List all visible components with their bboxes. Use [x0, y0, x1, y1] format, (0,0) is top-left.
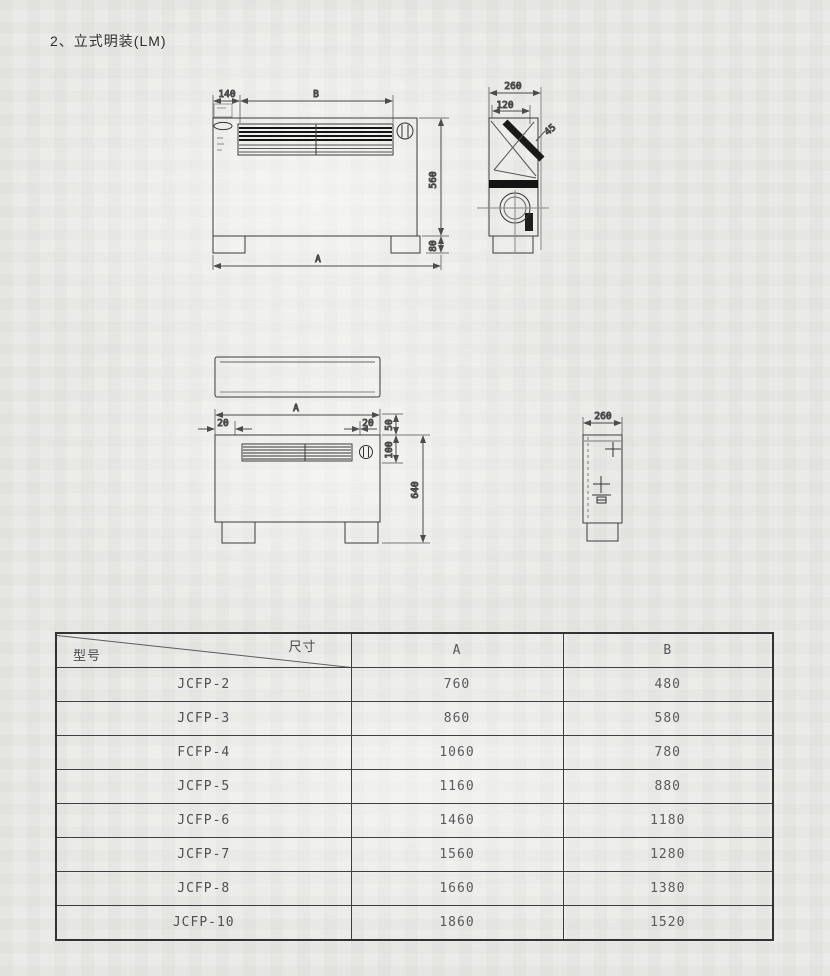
dim-label-640: 640 — [410, 481, 421, 498]
dim-a-cell: 1460 — [351, 804, 563, 838]
dim-a-cell: 760 — [351, 668, 563, 702]
model-cell: JCFP-3 — [56, 702, 351, 736]
corner-label-model: 型号 — [73, 645, 101, 664]
dim-b-cell: 580 — [563, 702, 773, 736]
model-cell: JCFP-5 — [56, 770, 351, 804]
dim-label-20-right: 20 — [362, 418, 374, 429]
dim-label-20-left: 20 — [217, 418, 229, 429]
table-header-row: 尺寸 型号 A B — [56, 633, 773, 668]
table-row: JCFP-8 1660 1380 — [56, 872, 773, 906]
top-view-drawing — [215, 357, 380, 397]
corner-cell: 尺寸 型号 — [56, 633, 351, 668]
dim-label-B: B — [313, 89, 319, 100]
dim-b-cell: 1180 — [563, 804, 773, 838]
column-header-a: A — [351, 633, 563, 668]
technical-drawings: 140 B — [0, 0, 830, 600]
dimension-table: 尺寸 型号 A B JCFP-2 760 480 JCFP-3 860 580 … — [55, 632, 774, 941]
model-cell: JCFP-8 — [56, 872, 351, 906]
dim-label-560: 560 — [428, 171, 439, 188]
dim-label-120: 120 — [496, 100, 513, 111]
dim-label-50: 50 — [384, 419, 395, 431]
model-cell: JCFP-6 — [56, 804, 351, 838]
front-view-mounted-drawing: A 20 20 50 — [198, 403, 430, 543]
dim-label-45: 45 — [542, 122, 558, 138]
side-view-mounted-drawing: 260 — [583, 411, 622, 541]
table-row: JCFP-5 1160 880 — [56, 770, 773, 804]
column-header-b: B — [563, 633, 773, 668]
dim-label-260-top: 260 — [504, 81, 521, 92]
louver-knob-mid — [360, 446, 373, 459]
table-row: JCFP-10 1860 1520 — [56, 906, 773, 941]
model-cell: JCFP-7 — [56, 838, 351, 872]
table-row: JCFP-2 760 480 — [56, 668, 773, 702]
dim-b-cell: 1280 — [563, 838, 773, 872]
front-view-drawing: 140 B — [213, 89, 449, 270]
dim-label-A-mid: A — [293, 403, 299, 414]
dim-b-cell: 1520 — [563, 906, 773, 941]
table-row: JCFP-7 1560 1280 — [56, 838, 773, 872]
dim-label-100: 100 — [384, 441, 395, 458]
dim-a-cell: 1860 — [351, 906, 563, 941]
corner-label-size: 尺寸 — [288, 636, 316, 655]
louver-knob — [397, 123, 413, 139]
dim-label-A: A — [315, 254, 321, 265]
dim-label-260-mid: 260 — [594, 411, 611, 422]
table-row: FCFP-4 1060 780 — [56, 736, 773, 770]
model-cell: FCFP-4 — [56, 736, 351, 770]
dim-a-cell: 1660 — [351, 872, 563, 906]
dim-a-cell: 1560 — [351, 838, 563, 872]
dim-b-cell: 780 — [563, 736, 773, 770]
model-cell: JCFP-2 — [56, 668, 351, 702]
table-row: JCFP-6 1460 1180 — [56, 804, 773, 838]
dim-a-cell: 860 — [351, 702, 563, 736]
dim-a-cell: 1060 — [351, 736, 563, 770]
side-view-drawing: 260 120 45 — [477, 81, 558, 253]
model-cell: JCFP-10 — [56, 906, 351, 941]
dim-label-80: 80 — [428, 240, 439, 252]
table-row: JCFP-3 860 580 — [56, 702, 773, 736]
dim-a-cell: 1160 — [351, 770, 563, 804]
dim-label-140: 140 — [218, 89, 235, 100]
dim-b-cell: 480 — [563, 668, 773, 702]
dim-b-cell: 1380 — [563, 872, 773, 906]
dim-b-cell: 880 — [563, 770, 773, 804]
